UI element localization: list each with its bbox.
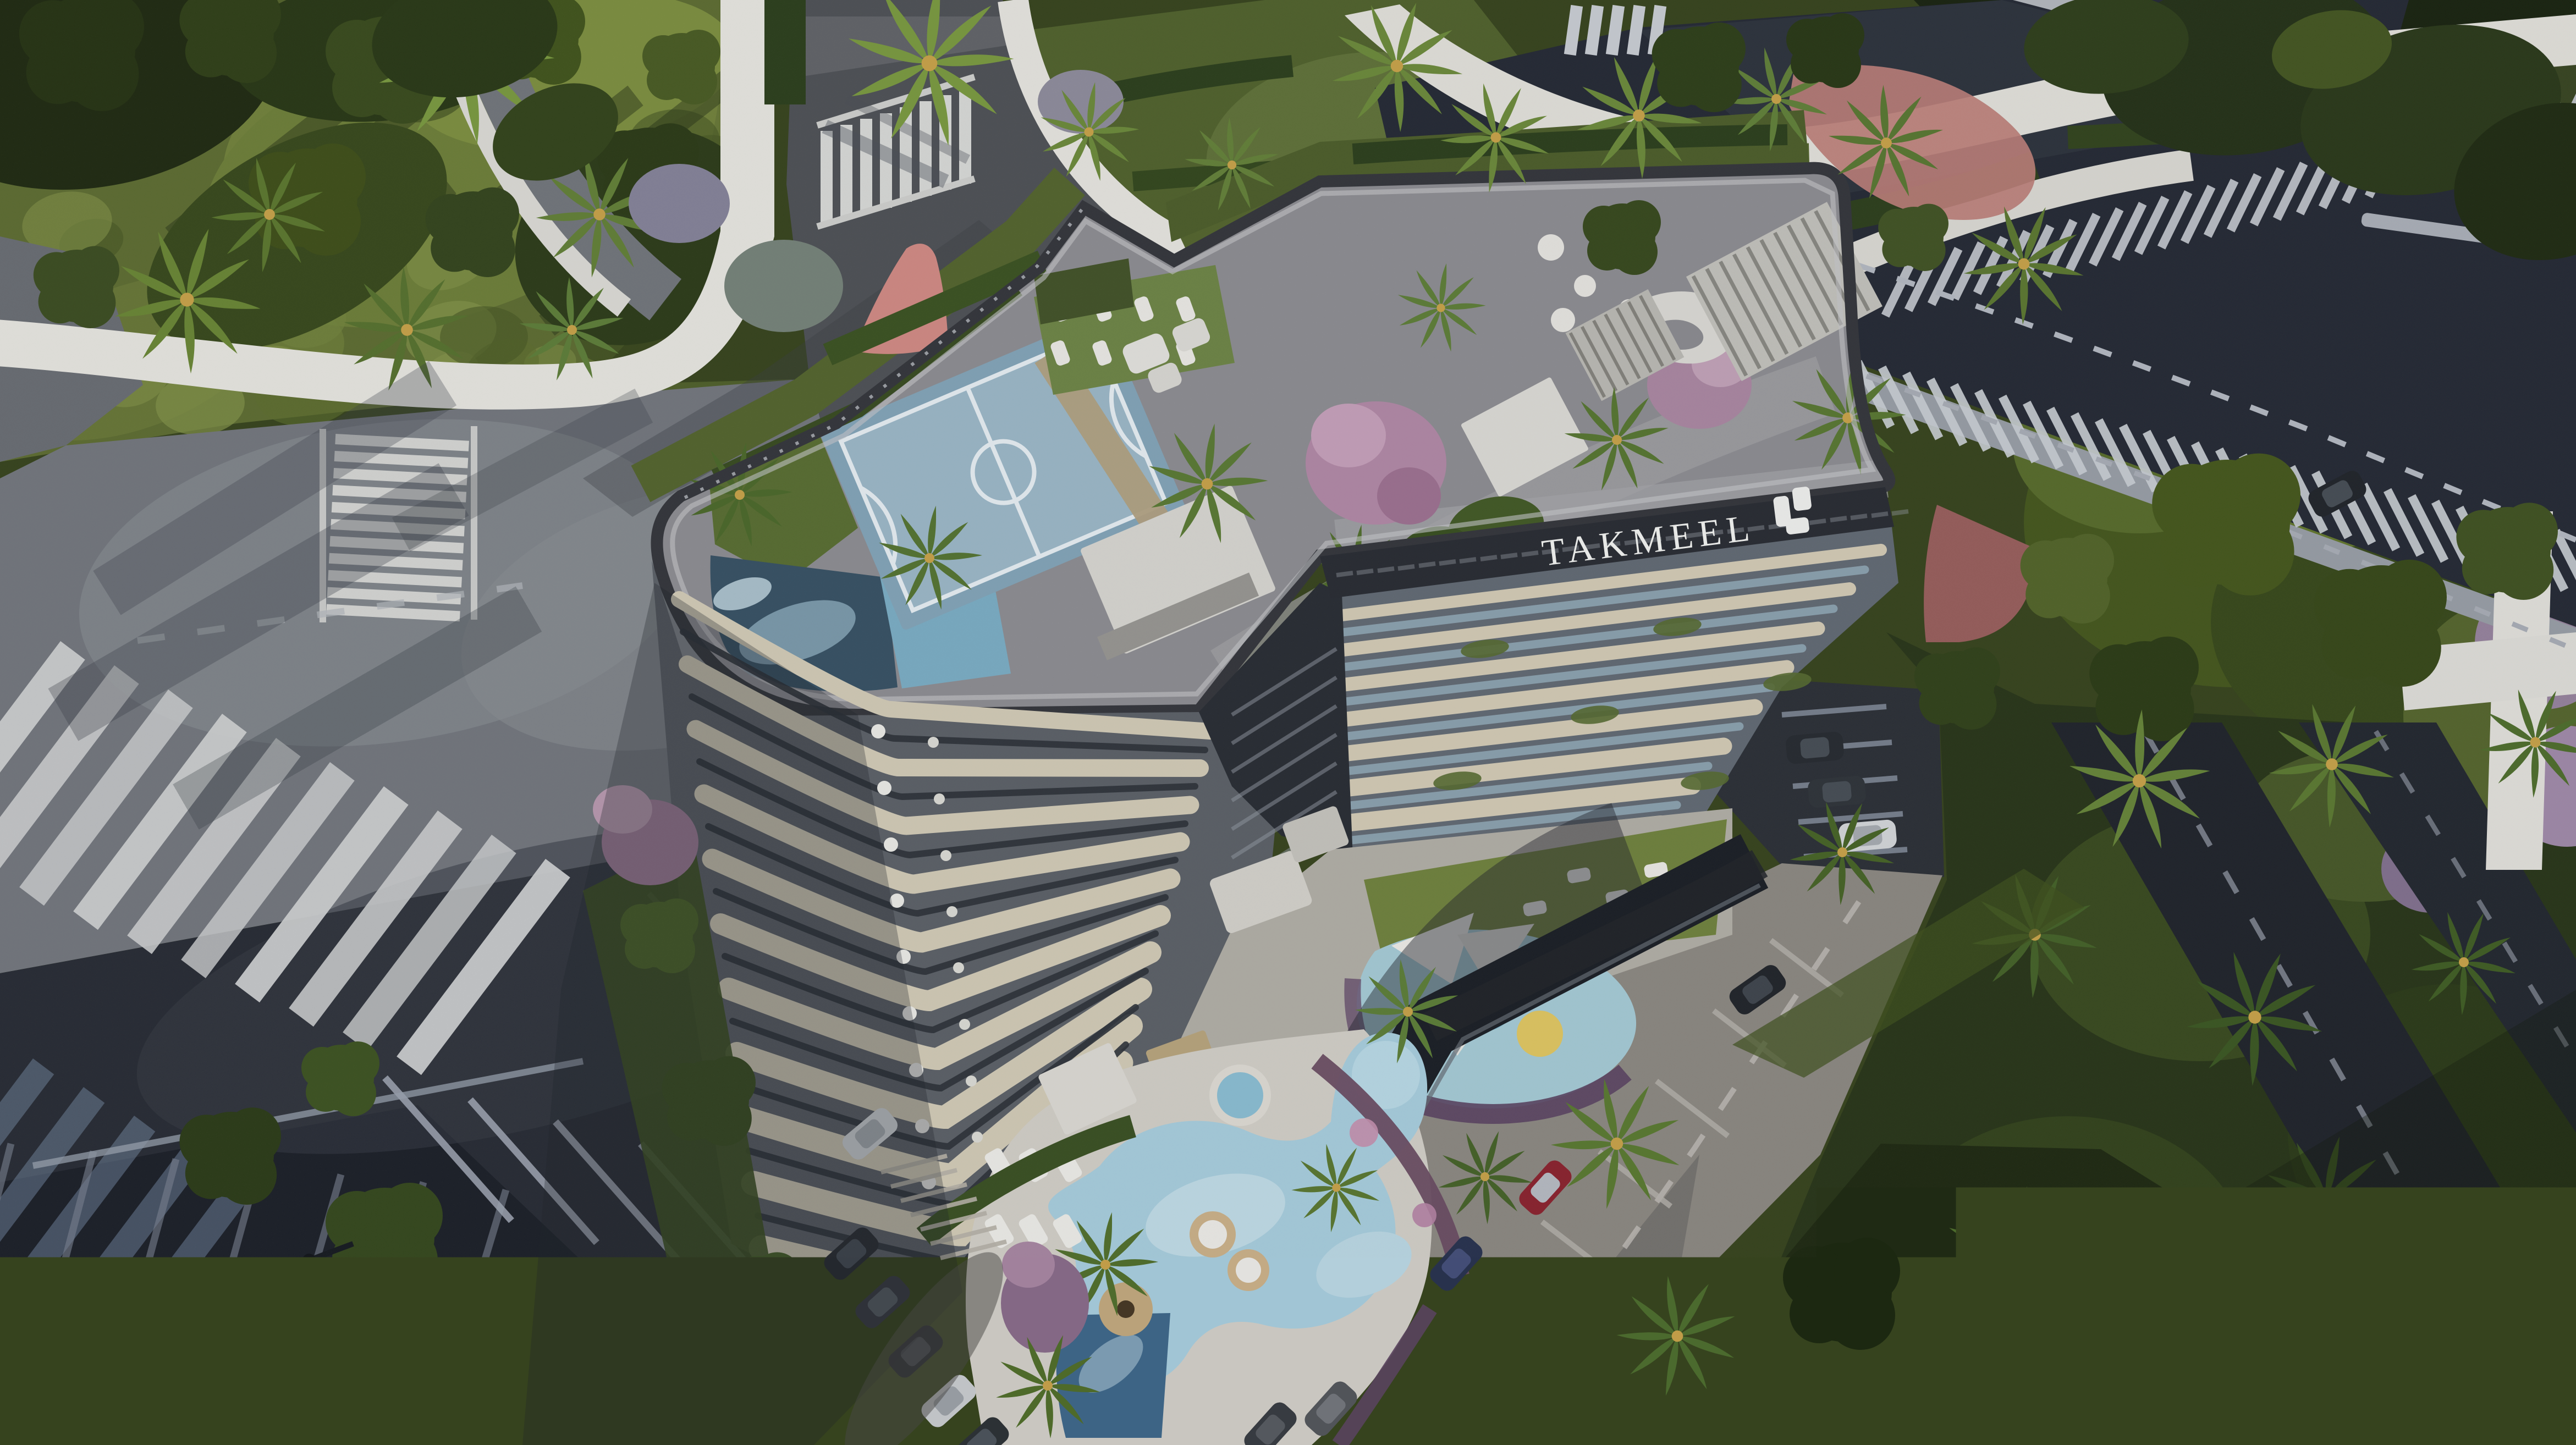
svg-text:Images/renders are for illustr: Images/renders are for illustrative purp…	[88, 1383, 741, 1397]
